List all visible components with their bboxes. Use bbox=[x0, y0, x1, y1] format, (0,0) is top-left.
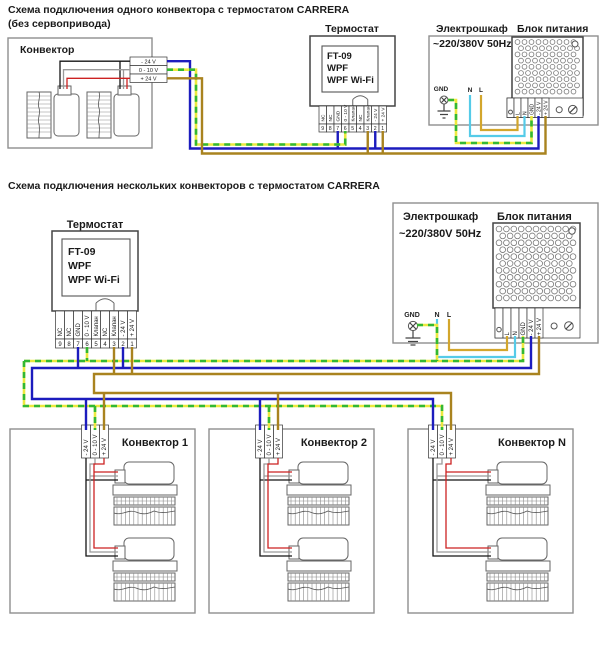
vent-hole-icon bbox=[541, 295, 547, 301]
gnd2-label: GND bbox=[404, 312, 420, 319]
fan-drum bbox=[487, 583, 548, 601]
vent-hole-icon bbox=[515, 288, 521, 294]
vent-hole-icon bbox=[526, 240, 532, 246]
vent-hole-icon bbox=[536, 89, 541, 94]
psu-terminal-label: GND bbox=[529, 104, 535, 116]
vent-hole-icon bbox=[533, 281, 539, 287]
vent-hole-icon bbox=[533, 240, 539, 246]
terminal-label: + 24 V bbox=[102, 438, 108, 456]
vent-hole-icon bbox=[561, 58, 566, 63]
vent-hole-icon bbox=[566, 261, 572, 267]
psu-terminal-label: + 24 V bbox=[543, 100, 549, 115]
psu-mount-cell bbox=[495, 308, 503, 338]
terminal-label: - 24 V bbox=[84, 439, 90, 455]
terminal-label: 0 - 10 V bbox=[93, 434, 99, 455]
thermostat2-terminal-strip: NC9NC8GND70 - 10 V6Клапан5NC4Клапан3- 24… bbox=[56, 311, 137, 348]
psu2-terminal-strip: LNGND- 24 V+ 24 V bbox=[495, 308, 580, 338]
vent-hole-icon bbox=[522, 288, 528, 294]
vent-hole-icon bbox=[557, 52, 562, 57]
vent-hole-icon bbox=[537, 288, 543, 294]
convector1-label: Конвектор 1 bbox=[122, 437, 188, 449]
vent-hole-icon bbox=[519, 83, 524, 88]
vent-hole-icon bbox=[518, 268, 524, 274]
vent-hole-icon bbox=[555, 295, 561, 301]
vent-hole-icon bbox=[496, 226, 502, 232]
terminal-label: Клапан bbox=[94, 316, 100, 336]
vent-hole-icon bbox=[568, 58, 573, 63]
vent-hole-icon bbox=[511, 295, 517, 301]
vent-hole-icon bbox=[522, 233, 528, 239]
vent-hole-icon bbox=[544, 261, 550, 267]
fan-motor bbox=[124, 462, 174, 484]
vent-hole-icon bbox=[541, 281, 547, 287]
vent-hole-icon bbox=[526, 83, 531, 88]
psu-mount-hole-icon bbox=[497, 327, 501, 331]
fan-motor bbox=[54, 94, 79, 136]
vent-hole-icon bbox=[500, 233, 506, 239]
vent-hole-icon bbox=[548, 281, 554, 287]
cabinet-label: Электрошкаф bbox=[436, 23, 508, 35]
terminal-number: 5 bbox=[351, 126, 354, 132]
vent-hole-icon bbox=[529, 288, 535, 294]
vent-hole-icon bbox=[540, 83, 545, 88]
thermostat-label: Термостат bbox=[325, 23, 379, 35]
l2-label: L bbox=[447, 312, 452, 319]
n2-label: N bbox=[434, 312, 439, 319]
thermostat-model-line1: FT-09 bbox=[327, 51, 352, 62]
vent-hole-icon bbox=[526, 226, 532, 232]
vent-hole-icon bbox=[529, 247, 535, 253]
vent-hole-icon bbox=[559, 288, 565, 294]
vent-hole-icon bbox=[515, 52, 520, 57]
terminal-label: NC bbox=[58, 327, 64, 336]
vent-hole-icon bbox=[557, 40, 562, 45]
vent-hole-icon bbox=[526, 281, 532, 287]
psu-terminal-label: N bbox=[513, 331, 519, 335]
vent-hole-icon bbox=[559, 247, 565, 253]
vent-hole-icon bbox=[570, 295, 576, 301]
diagram2-title: Схема подключения нескольких конвекторов… bbox=[8, 180, 380, 192]
vent-hole-icon bbox=[518, 281, 524, 287]
vent-hole-icon bbox=[511, 240, 517, 246]
vent-hole-icon bbox=[518, 240, 524, 246]
psu2-label: Блок питания bbox=[497, 211, 572, 223]
vent-hole-icon bbox=[522, 77, 527, 82]
terminal-label: GND bbox=[76, 323, 82, 337]
terminal-label: - 24 V bbox=[121, 320, 127, 336]
terminal-label: + 24 V bbox=[380, 107, 386, 122]
terminal-label: NC bbox=[320, 114, 326, 121]
wiring-diagram-svg: Схема подключения одного конвектора с те… bbox=[0, 0, 600, 666]
vent-hole-icon bbox=[559, 261, 565, 267]
terminal-label: Клапан bbox=[365, 105, 371, 122]
terminal-label: NC bbox=[103, 327, 109, 336]
thermostat-model-line2: WPF bbox=[327, 63, 348, 74]
psu-screw-icon bbox=[572, 41, 578, 47]
vent-hole-icon bbox=[543, 64, 548, 69]
vent-hole-icon bbox=[515, 77, 520, 82]
diagram-multiple-convectors: Схема подключения нескольких конвекторов… bbox=[8, 180, 598, 613]
vent-hole-icon bbox=[555, 226, 561, 232]
n-label: N bbox=[468, 87, 473, 94]
vent-hole-icon bbox=[518, 226, 524, 232]
vent-hole-icon bbox=[548, 254, 554, 260]
vent-hole-icon bbox=[522, 261, 528, 267]
terminal-label: + 24 V bbox=[276, 438, 282, 456]
vent-hole-icon bbox=[507, 247, 513, 253]
psu2-screw-icon bbox=[569, 228, 575, 234]
fan-drum bbox=[487, 507, 548, 525]
psu-mount-cell bbox=[507, 98, 514, 118]
terminal-label: Клапан bbox=[350, 105, 356, 122]
vent-hole-icon bbox=[518, 254, 524, 260]
vent-hole-icon bbox=[561, 71, 566, 76]
vent-hole-icon bbox=[570, 281, 576, 287]
vent-hole-icon bbox=[522, 89, 527, 94]
vent-hole-icon bbox=[511, 281, 517, 287]
vent-hole-icon bbox=[557, 64, 562, 69]
vent-hole-icon bbox=[496, 268, 502, 274]
terminal-label: - 24 V bbox=[431, 439, 437, 455]
vent-hole-icon bbox=[559, 274, 565, 280]
vent-hole-icon bbox=[533, 295, 539, 301]
vent-hole-icon bbox=[564, 89, 569, 94]
vent-hole-icon bbox=[522, 247, 528, 253]
vent-hole-icon bbox=[554, 46, 559, 51]
vent-hole-icon bbox=[507, 288, 513, 294]
vent-hole-icon bbox=[544, 288, 550, 294]
vent-hole-icon bbox=[557, 89, 562, 94]
vent-hole-icon bbox=[550, 64, 555, 69]
vent-hole-icon bbox=[563, 295, 569, 301]
vent-hole-icon bbox=[529, 64, 534, 69]
vent-hole-icon bbox=[526, 46, 531, 51]
vent-hole-icon bbox=[529, 89, 534, 94]
vent-hole-icon bbox=[511, 254, 517, 260]
vent-hole-icon bbox=[504, 240, 510, 246]
vent-hole-icon bbox=[571, 77, 576, 82]
vent-hole-icon bbox=[563, 226, 569, 232]
vent-hole-icon bbox=[496, 240, 502, 246]
fan-motor bbox=[124, 538, 174, 560]
vent-hole-icon bbox=[526, 58, 531, 63]
fan-motor bbox=[497, 538, 547, 560]
motor-base bbox=[486, 561, 550, 571]
convector2-label: Конвектор 2 bbox=[301, 437, 367, 449]
vent-hole-icon bbox=[570, 254, 576, 260]
vent-hole-icon bbox=[547, 71, 552, 76]
terminal-number: 4 bbox=[359, 126, 362, 132]
vent-hole-icon bbox=[504, 281, 510, 287]
vent-hole-icon bbox=[507, 261, 513, 267]
vent-hole-icon bbox=[552, 274, 558, 280]
vent-hole-icon bbox=[566, 274, 572, 280]
gnd-label: GND bbox=[434, 86, 449, 93]
vent-hole-icon bbox=[548, 226, 554, 232]
diagram1-title-line2: (без сервопривода) bbox=[8, 18, 111, 30]
vent-hole-icon bbox=[526, 254, 532, 260]
vent-hole-icon bbox=[504, 226, 510, 232]
thermostat-terminal-strip: NC9NC8GND70 - 10 V6Клапан5NC4Клапан3- 24… bbox=[319, 104, 387, 132]
terminal-label: NC bbox=[67, 327, 73, 336]
vent-hole-icon bbox=[529, 40, 534, 45]
vent-hole-icon bbox=[544, 247, 550, 253]
vent-hole-icon bbox=[500, 261, 506, 267]
vent-hole-icon bbox=[543, 40, 548, 45]
vent-hole-icon bbox=[529, 261, 535, 267]
vent-hole-icon bbox=[555, 254, 561, 260]
vent-hole-icon bbox=[537, 274, 543, 280]
vent-hole-icon bbox=[522, 274, 528, 280]
vent-hole-icon bbox=[563, 240, 569, 246]
vent-hole-icon bbox=[515, 40, 520, 45]
vent-hole-icon bbox=[561, 83, 566, 88]
terminal-label: 0 - 10 V bbox=[139, 68, 159, 74]
vent-hole-icon bbox=[555, 268, 561, 274]
thermostat2-model-line1: FT-09 bbox=[68, 246, 96, 258]
vent-hole-icon bbox=[564, 64, 569, 69]
vent-hole-icon bbox=[522, 64, 527, 69]
terminal-label: 0 - 10 V bbox=[440, 434, 446, 455]
vent-hole-icon bbox=[540, 46, 545, 51]
vent-hole-icon bbox=[570, 268, 576, 274]
vent-hole-icon bbox=[519, 71, 524, 76]
vent-hole-icon bbox=[564, 77, 569, 82]
vent-hole-icon bbox=[507, 233, 513, 239]
cabinet-voltage: ~220/380V 50Hz bbox=[433, 38, 512, 50]
motor-base bbox=[287, 561, 351, 571]
convectorN-label: Конвектор N bbox=[498, 437, 566, 449]
vent-hole-icon bbox=[547, 58, 552, 63]
vent-hole-icon bbox=[557, 77, 562, 82]
vent-hole-icon bbox=[537, 233, 543, 239]
terminal-label: Клапан bbox=[112, 316, 118, 336]
vent-hole-icon bbox=[554, 58, 559, 63]
vent-hole-icon bbox=[496, 281, 502, 287]
vent-hole-icon bbox=[537, 261, 543, 267]
psu-terminal-label: + 24 V bbox=[537, 318, 543, 336]
vent-hole-icon bbox=[496, 295, 502, 301]
vent-hole-icon bbox=[536, 64, 541, 69]
psu-terminal-label: - 24 V bbox=[536, 101, 542, 115]
vent-hole-icon bbox=[515, 89, 520, 94]
vent-hole-icon bbox=[568, 71, 573, 76]
vent-hole-icon bbox=[533, 46, 538, 51]
diagram1-title-line1: Схема подключения одного конвектора с те… bbox=[8, 4, 350, 16]
vent-hole-icon bbox=[518, 295, 524, 301]
psu-terminal-strip: LNGND- 24 V+ 24 V bbox=[507, 98, 583, 118]
psu-mount-hole-icon bbox=[556, 107, 562, 113]
vent-hole-icon bbox=[571, 52, 576, 57]
cabinet2-voltage: ~220/380V 50Hz bbox=[399, 228, 482, 240]
fan-drum bbox=[114, 583, 175, 601]
convector-terminal-block: - 24 V0 - 10 V+ 24 V bbox=[130, 57, 167, 83]
terminal-number: 9 bbox=[321, 126, 324, 132]
terminal-label: + 24 V bbox=[130, 319, 136, 337]
vent-hole-icon bbox=[564, 52, 569, 57]
vent-hole-icon bbox=[541, 226, 547, 232]
vent-hole-icon bbox=[563, 268, 569, 274]
vent-hole-icon bbox=[548, 240, 554, 246]
vent-hole-icon bbox=[537, 247, 543, 253]
vent-hole-icon bbox=[552, 233, 558, 239]
vent-hole-icon bbox=[533, 83, 538, 88]
vent-hole-icon bbox=[571, 64, 576, 69]
vent-hole-icon bbox=[529, 77, 534, 82]
vent-hole-icon bbox=[550, 40, 555, 45]
motor-base bbox=[287, 485, 351, 495]
vent-hole-icon bbox=[548, 295, 554, 301]
motor-base bbox=[113, 561, 177, 571]
vent-hole-icon bbox=[552, 247, 558, 253]
vent-hole-icon bbox=[543, 77, 548, 82]
terminal-label: - 24 V bbox=[258, 439, 264, 455]
thermostat2-label: Термостат bbox=[67, 219, 124, 231]
vent-hole-icon bbox=[515, 261, 521, 267]
wiring-diagram-page: Схема подключения одного конвектора с те… bbox=[0, 0, 600, 666]
fan-motor bbox=[298, 538, 348, 560]
diagram-single-convector: Схема подключения одного конвектора с те… bbox=[8, 4, 598, 154]
vent-hole-icon bbox=[536, 52, 541, 57]
psu-terminal-label: GND bbox=[521, 322, 527, 336]
vent-hole-icon bbox=[496, 254, 502, 260]
vent-hole-icon bbox=[511, 226, 517, 232]
vent-hole-icon bbox=[533, 254, 539, 260]
psu-mount-hole-icon bbox=[509, 110, 513, 114]
vent-hole-icon bbox=[504, 254, 510, 260]
vent-hole-icon bbox=[541, 268, 547, 274]
vent-hole-icon bbox=[526, 268, 532, 274]
fan-motor bbox=[298, 462, 348, 484]
psu-terminal-label: L bbox=[515, 112, 521, 115]
terminal-label: 0 - 10 V bbox=[267, 434, 273, 455]
vent-hole-icon bbox=[504, 268, 510, 274]
terminal-label: + 24 V bbox=[449, 438, 455, 456]
vent-hole-icon bbox=[533, 226, 539, 232]
cabinet2-label: Электрошкаф bbox=[403, 211, 479, 223]
vent-hole-icon bbox=[552, 288, 558, 294]
fan-drum bbox=[288, 507, 349, 525]
vent-hole-icon bbox=[566, 247, 572, 253]
vent-hole-icon bbox=[511, 268, 517, 274]
convector-label: Конвектор bbox=[20, 44, 74, 56]
vent-hole-icon bbox=[529, 52, 534, 57]
vent-hole-icon bbox=[554, 83, 559, 88]
vent-hole-icon bbox=[526, 295, 532, 301]
terminal-label: - 24 V bbox=[141, 59, 156, 65]
vent-hole-icon bbox=[561, 46, 566, 51]
vent-hole-icon bbox=[529, 233, 535, 239]
vent-hole-icon bbox=[507, 274, 513, 280]
vent-hole-icon bbox=[533, 268, 539, 274]
vent-hole-icon bbox=[504, 295, 510, 301]
thermostat2-model-line3: WPF Wi-Fi bbox=[68, 274, 120, 286]
vent-hole-icon bbox=[540, 58, 545, 63]
vent-hole-icon bbox=[550, 89, 555, 94]
l-label: L bbox=[479, 87, 483, 94]
vent-hole-icon bbox=[529, 274, 535, 280]
vent-hole-icon bbox=[563, 254, 569, 260]
fan-drum bbox=[114, 507, 175, 525]
vent-hole-icon bbox=[575, 58, 580, 63]
terminal-label: 0 - 10 V bbox=[85, 315, 91, 336]
vent-hole-icon bbox=[541, 254, 547, 260]
fan-motor bbox=[114, 94, 139, 136]
vent-hole-icon bbox=[519, 58, 524, 63]
vent-hole-icon bbox=[575, 71, 580, 76]
vent-hole-icon bbox=[563, 281, 569, 287]
psu-terminal-label: - 24 V bbox=[529, 319, 535, 335]
terminal-label: NC bbox=[358, 114, 364, 121]
vent-hole-icon bbox=[533, 58, 538, 63]
vent-hole-icon bbox=[522, 52, 527, 57]
motor-base bbox=[486, 485, 550, 495]
fan-motor bbox=[497, 462, 547, 484]
terminal-label: + 24 V bbox=[140, 76, 156, 82]
vent-hole-icon bbox=[519, 46, 524, 51]
motor-base bbox=[113, 485, 177, 495]
vent-hole-icon bbox=[566, 288, 572, 294]
vent-hole-icon bbox=[500, 274, 506, 280]
vent-hole-icon bbox=[559, 233, 565, 239]
vent-hole-icon bbox=[555, 281, 561, 287]
vent-hole-icon bbox=[550, 52, 555, 57]
terminal-number: 8 bbox=[329, 126, 332, 132]
vent-hole-icon bbox=[544, 274, 550, 280]
vent-hole-icon bbox=[570, 240, 576, 246]
fan-drum bbox=[288, 583, 349, 601]
vent-hole-icon bbox=[550, 77, 555, 82]
vent-hole-icon bbox=[568, 46, 573, 51]
terminal-label: NC bbox=[328, 114, 334, 121]
vent-hole-icon bbox=[554, 71, 559, 76]
vent-hole-icon bbox=[533, 71, 538, 76]
vent-hole-icon bbox=[540, 71, 545, 76]
vent-hole-icon bbox=[500, 288, 506, 294]
vent-hole-icon bbox=[571, 89, 576, 94]
vent-hole-icon bbox=[515, 247, 521, 253]
vent-hole-icon bbox=[515, 274, 521, 280]
thermostat-model-line3: WPF Wi-Fi bbox=[327, 75, 374, 86]
vent-hole-icon bbox=[515, 64, 520, 69]
vent-hole-icon bbox=[544, 233, 550, 239]
vent-hole-icon bbox=[543, 52, 548, 57]
vent-hole-icon bbox=[543, 89, 548, 94]
psu-mount-hole-icon bbox=[551, 323, 557, 329]
vent-hole-icon bbox=[526, 71, 531, 76]
vent-hole-icon bbox=[552, 261, 558, 267]
terminal-label: 0 - 10 V bbox=[343, 104, 349, 122]
psu-label: Блок питания bbox=[517, 23, 588, 35]
vent-hole-icon bbox=[568, 83, 573, 88]
vent-hole-icon bbox=[515, 233, 521, 239]
vent-hole-icon bbox=[547, 46, 552, 51]
vent-hole-icon bbox=[547, 83, 552, 88]
psu-terminal-label: N bbox=[522, 111, 528, 115]
terminal-label: GND bbox=[335, 110, 341, 121]
vent-hole-icon bbox=[541, 240, 547, 246]
vent-hole-icon bbox=[522, 40, 527, 45]
vent-hole-icon bbox=[555, 240, 561, 246]
thermostat2-model-line2: WPF bbox=[68, 260, 92, 272]
vent-hole-icon bbox=[536, 40, 541, 45]
vent-hole-icon bbox=[548, 268, 554, 274]
vent-hole-icon bbox=[575, 83, 580, 88]
vent-hole-icon bbox=[500, 247, 506, 253]
vent-hole-icon bbox=[564, 40, 569, 45]
terminal-label: - 24 V bbox=[373, 108, 379, 122]
vent-hole-icon bbox=[536, 77, 541, 82]
